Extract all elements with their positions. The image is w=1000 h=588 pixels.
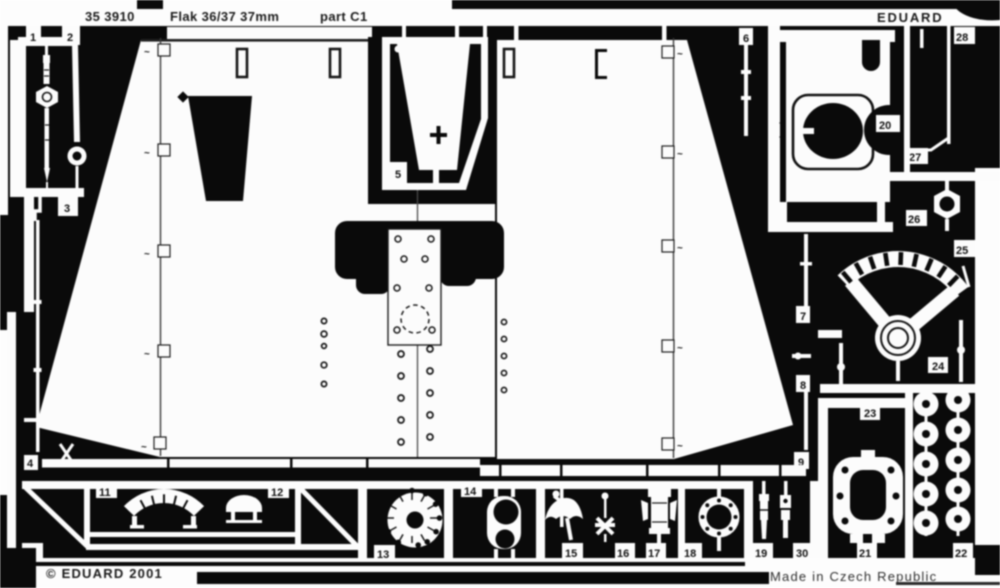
svg-text:27: 27 — [909, 152, 921, 164]
svg-text:~: ~ — [677, 441, 683, 452]
svg-text:24: 24 — [932, 361, 945, 373]
svg-text:~: ~ — [677, 343, 683, 354]
svg-text:23: 23 — [864, 408, 876, 420]
svg-text:25: 25 — [956, 245, 968, 257]
svg-text:4: 4 — [27, 458, 34, 470]
svg-text:5: 5 — [395, 169, 401, 181]
svg-text:Made in Czech Republic: Made in Czech Republic — [770, 569, 937, 584]
svg-text:11: 11 — [99, 487, 111, 499]
svg-text:35 3910: 35 3910 — [85, 9, 135, 24]
svg-text:Flak 36/37 37mm: Flak 36/37 37mm — [170, 9, 279, 24]
svg-text:14: 14 — [464, 486, 477, 498]
svg-text:© EDUARD 2001: © EDUARD 2001 — [46, 566, 163, 581]
svg-text:part C1: part C1 — [320, 9, 368, 24]
svg-text:~: ~ — [144, 47, 150, 58]
svg-text:~: ~ — [677, 49, 683, 60]
svg-text:28: 28 — [956, 32, 968, 44]
svg-text:~: ~ — [144, 349, 150, 360]
svg-text:26: 26 — [908, 214, 920, 226]
svg-text:12: 12 — [271, 487, 283, 499]
svg-text:7: 7 — [800, 311, 806, 323]
svg-text:6: 6 — [743, 33, 749, 45]
svg-text:8: 8 — [800, 380, 806, 392]
svg-text:EDUARD: EDUARD — [877, 10, 943, 25]
svg-text:~: ~ — [144, 148, 150, 159]
svg-text:~: ~ — [141, 442, 147, 453]
svg-text:~: ~ — [677, 149, 683, 160]
svg-text:20: 20 — [879, 120, 891, 132]
svg-text:2: 2 — [67, 32, 73, 44]
svg-text:~: ~ — [144, 249, 150, 260]
svg-text:1: 1 — [30, 32, 36, 44]
svg-text:~: ~ — [677, 243, 683, 254]
svg-text:3: 3 — [64, 203, 70, 215]
